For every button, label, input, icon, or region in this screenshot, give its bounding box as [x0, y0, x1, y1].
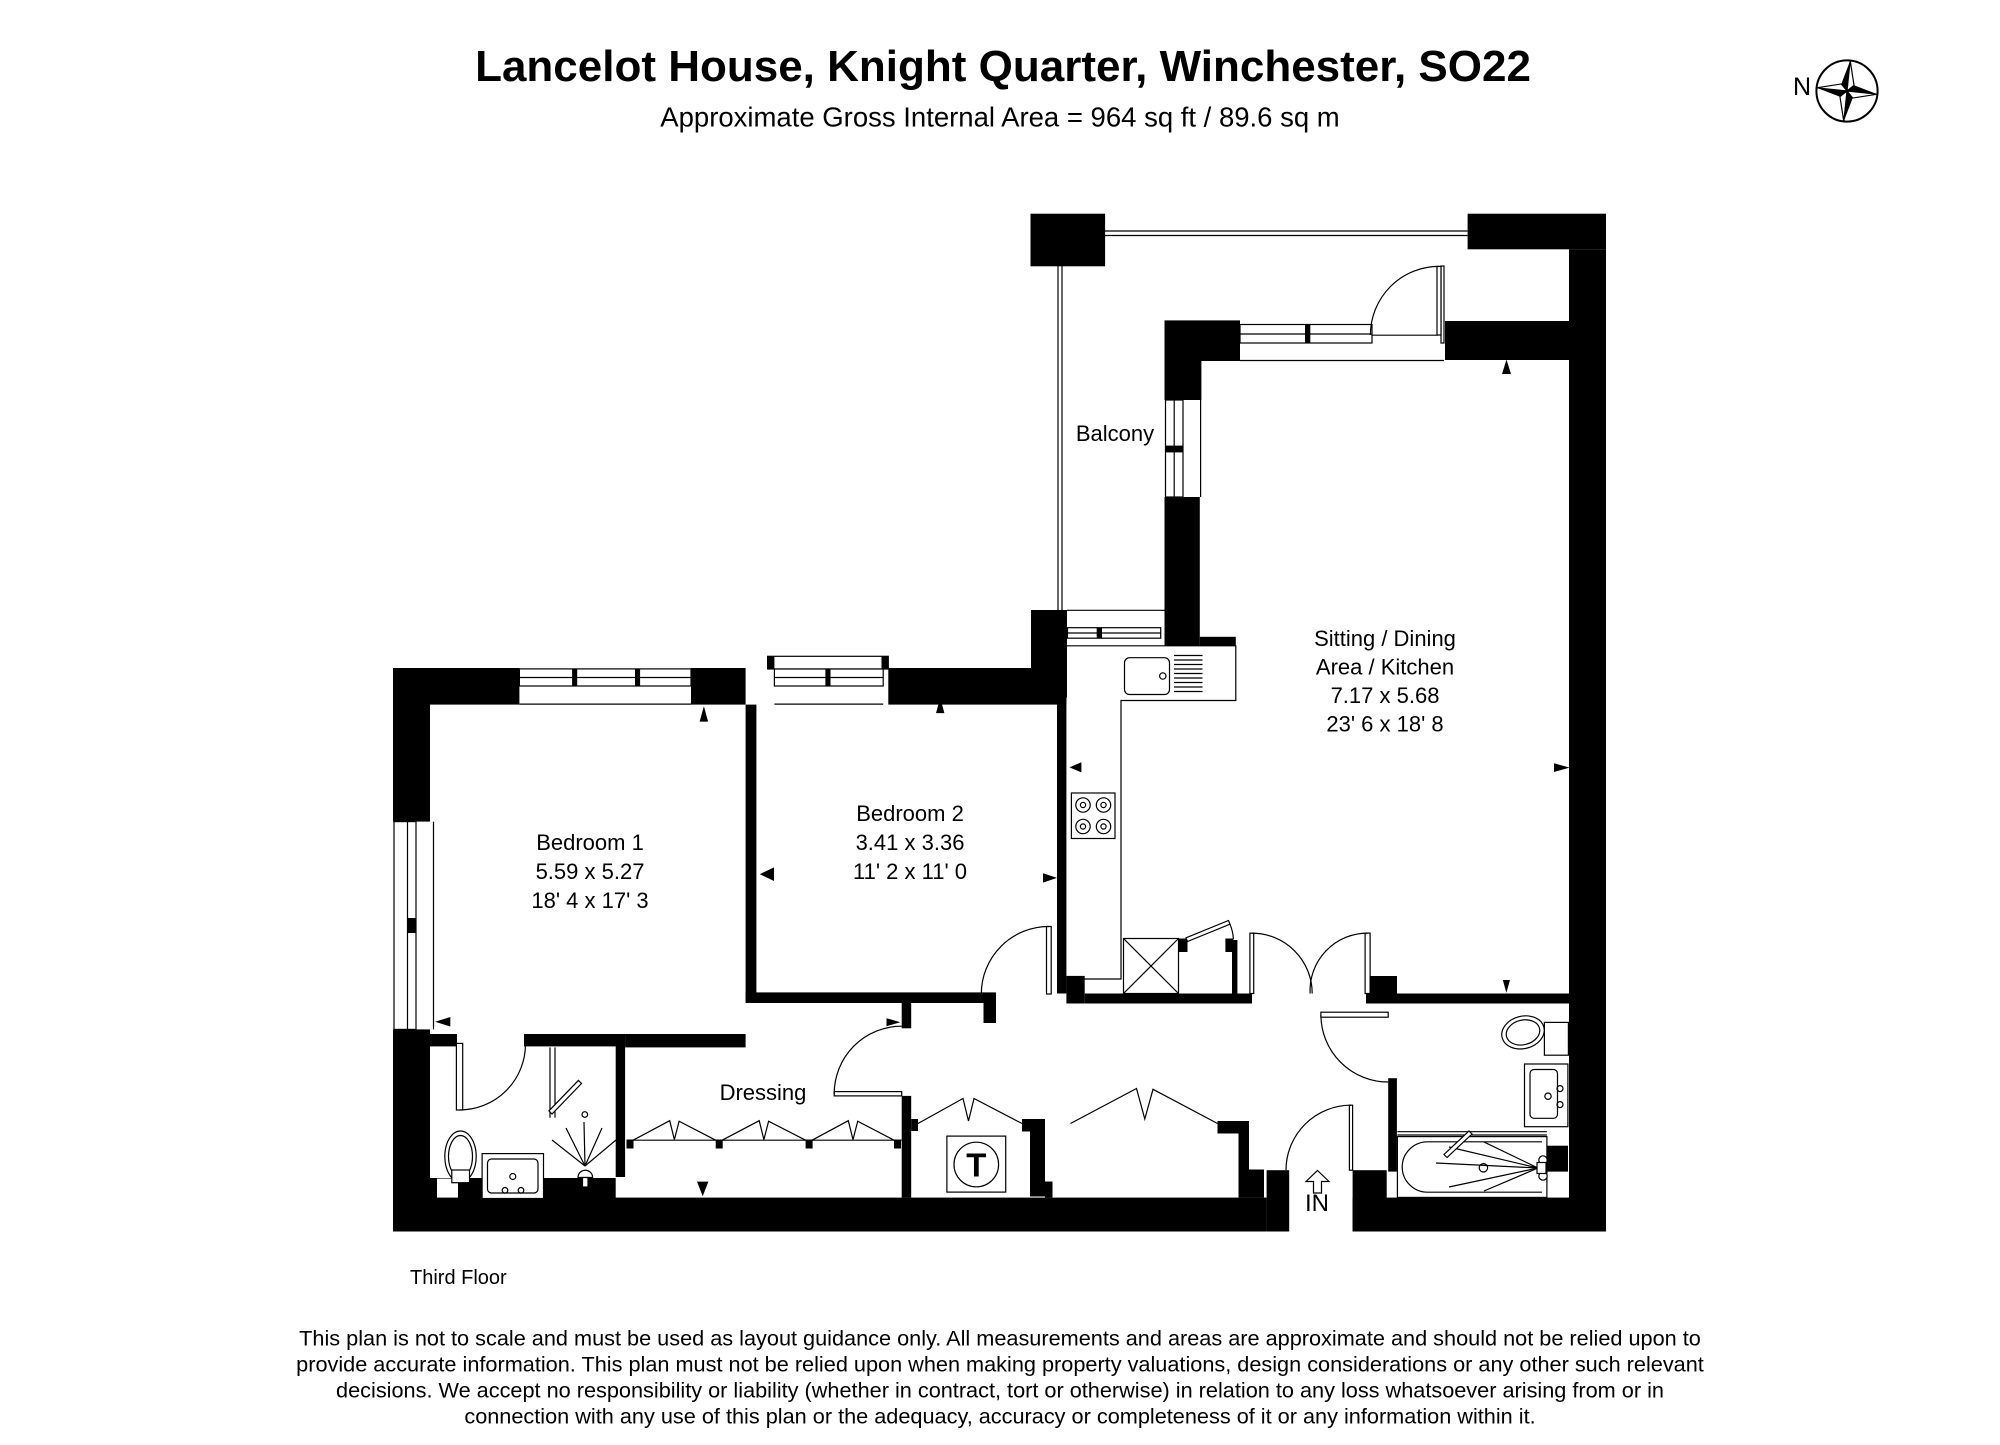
svg-text:7.17 x 5.68: 7.17 x 5.68: [1331, 683, 1440, 708]
svg-text:5.59 x 5.27: 5.59 x 5.27: [536, 859, 645, 884]
svg-text:This plan is not to scale and: This plan is not to scale and must be us…: [299, 1326, 1701, 1351]
svg-text:3.41 x 3.36: 3.41 x 3.36: [856, 830, 965, 855]
svg-text:IN: IN: [1305, 1190, 1329, 1217]
svg-text:decisions. We accept no respon: decisions. We accept no responsibility o…: [336, 1378, 1664, 1403]
svg-text:18' 4 x 17' 3: 18' 4 x 17' 3: [531, 888, 648, 913]
svg-text:provide accurate information.: provide accurate information. This plan …: [296, 1352, 1704, 1377]
svg-text:Bedroom 2: Bedroom 2: [856, 801, 964, 826]
svg-text:23' 6 x 18' 8: 23' 6 x 18' 8: [1326, 712, 1443, 737]
svg-text:Sitting / Dining: Sitting / Dining: [1314, 626, 1456, 651]
svg-text:Third Floor: Third Floor: [410, 1267, 507, 1289]
svg-text:11' 2 x 11' 0: 11' 2 x 11' 0: [853, 859, 967, 884]
svg-text:Dressing: Dressing: [720, 1080, 807, 1105]
svg-text:Lancelot House, Knight Quarter: Lancelot House, Knight Quarter, Winchest…: [475, 42, 1531, 91]
svg-text:Approximate Gross Internal Are: Approximate Gross Internal Area = 964 sq…: [660, 102, 1339, 133]
svg-text:N: N: [1793, 73, 1811, 101]
svg-text:Bedroom 1: Bedroom 1: [536, 830, 644, 855]
svg-text:Area / Kitchen: Area / Kitchen: [1316, 655, 1454, 680]
svg-text:Balcony: Balcony: [1076, 421, 1154, 446]
svg-text:connection with any use of thi: connection with any use of this plan or …: [464, 1404, 1535, 1429]
svg-text:T: T: [966, 1147, 986, 1184]
